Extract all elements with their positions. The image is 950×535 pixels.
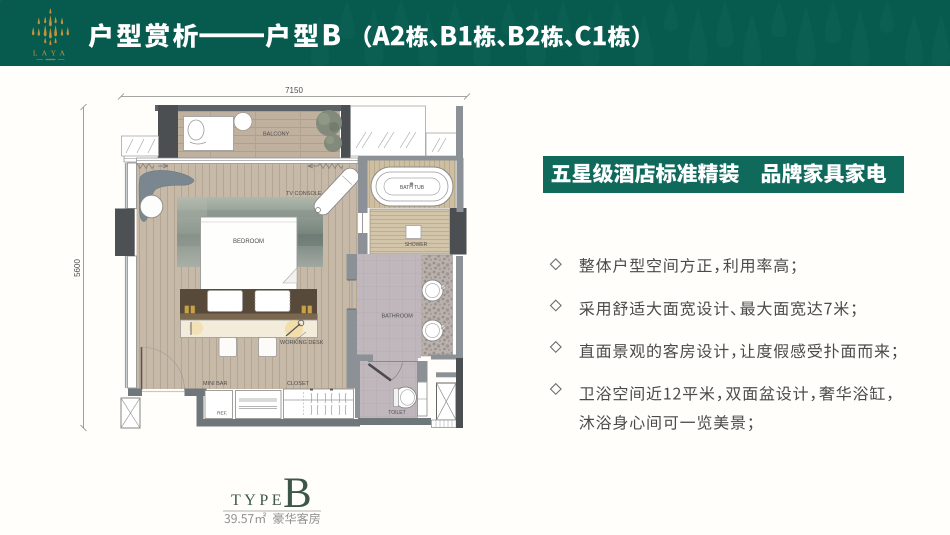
svg-text:LAYA: LAYA (33, 49, 69, 58)
svg-text:WORKING DESK: WORKING DESK (280, 340, 324, 346)
svg-text:7150: 7150 (285, 86, 303, 95)
svg-text:BATHROOM: BATHROOM (382, 314, 414, 320)
svg-text:REF.: REF. (217, 411, 227, 417)
svg-text:BALCONY: BALCONY (263, 132, 290, 138)
svg-text:SHOWER: SHOWER (405, 242, 428, 248)
svg-text:BEDROOM: BEDROOM (233, 239, 264, 245)
svg-text:CLOSET: CLOSET (287, 381, 310, 387)
svg-text:MINI BAR: MINI BAR (203, 381, 227, 387)
svg-text:5600: 5600 (73, 259, 82, 277)
svg-text:TYPE: TYPE (231, 492, 285, 509)
svg-text:B: B (283, 470, 312, 517)
svg-text:BATH TUB: BATH TUB (400, 185, 425, 191)
svg-text:TV CONSOLE: TV CONSOLE (286, 191, 322, 197)
svg-text:TOILET: TOILET (388, 410, 405, 416)
